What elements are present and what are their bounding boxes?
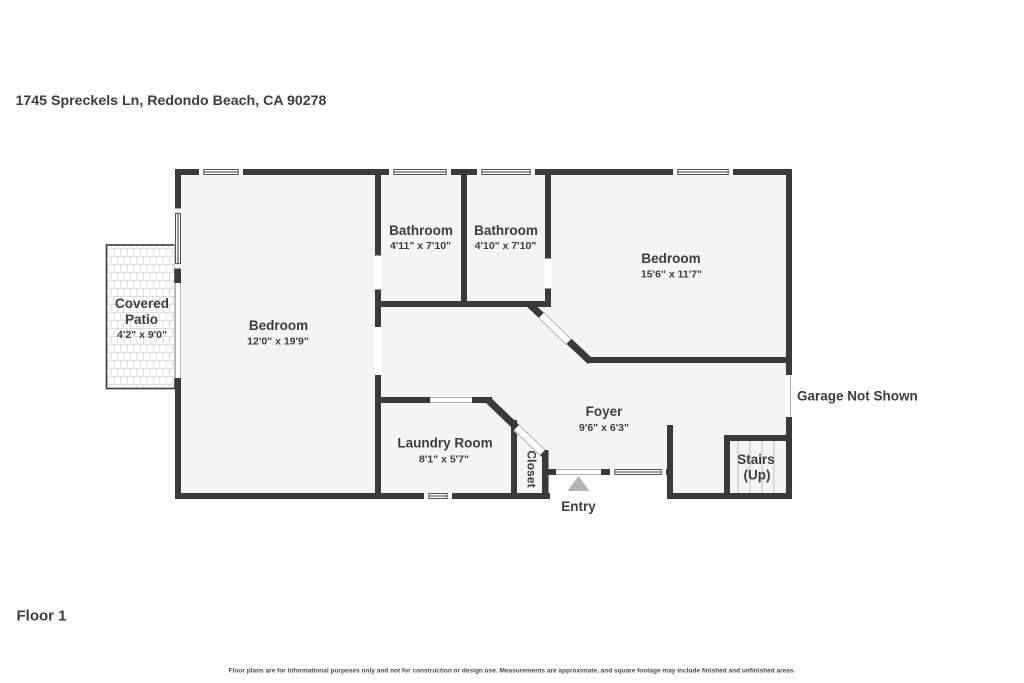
svg-text:Closet: Closet bbox=[525, 450, 539, 487]
svg-text:(Up): (Up) bbox=[744, 468, 771, 483]
svg-text:Laundry Room: Laundry Room bbox=[397, 436, 492, 451]
svg-text:15'6" x 11'7": 15'6" x 11'7" bbox=[641, 269, 702, 281]
svg-text:Foyer: Foyer bbox=[586, 404, 624, 419]
svg-text:12'0" x 19'9": 12'0" x 19'9" bbox=[247, 336, 309, 348]
svg-text:Floor plans are for informatio: Floor plans are for informational purpos… bbox=[229, 668, 796, 675]
svg-text:9'6" x 6'3": 9'6" x 6'3" bbox=[579, 422, 629, 434]
svg-text:Bedroom: Bedroom bbox=[641, 251, 700, 266]
svg-text:4'11" x 7'10": 4'11" x 7'10" bbox=[390, 240, 451, 252]
svg-text:Covered: Covered bbox=[115, 296, 169, 311]
svg-text:4'2" x 9'0": 4'2" x 9'0" bbox=[117, 329, 167, 341]
svg-text:Garage Not Shown: Garage Not Shown bbox=[797, 389, 918, 404]
svg-text:Entry: Entry bbox=[561, 499, 596, 514]
svg-text:1745 Spreckels Ln, Redondo Bea: 1745 Spreckels Ln, Redondo Beach, CA 902… bbox=[16, 93, 327, 109]
svg-text:Floor 1: Floor 1 bbox=[17, 608, 67, 625]
svg-text:Bathroom: Bathroom bbox=[389, 223, 453, 238]
svg-text:Bedroom: Bedroom bbox=[249, 318, 308, 333]
svg-text:Stairs: Stairs bbox=[737, 452, 775, 467]
svg-text:4'10" x 7'10": 4'10" x 7'10" bbox=[475, 240, 537, 252]
svg-text:Bathroom: Bathroom bbox=[474, 223, 538, 238]
svg-text:Patio: Patio bbox=[125, 312, 158, 327]
svg-text:8'1" x 5'7": 8'1" x 5'7" bbox=[419, 454, 469, 466]
